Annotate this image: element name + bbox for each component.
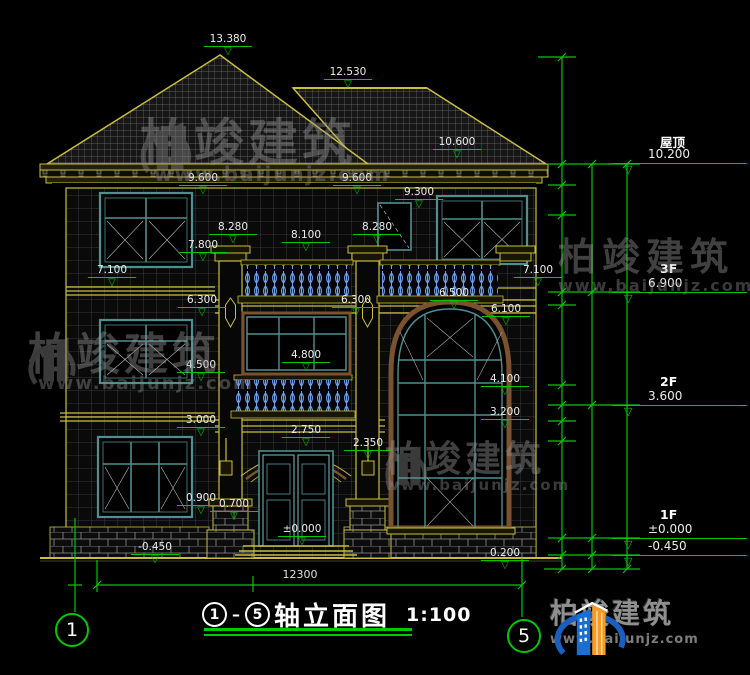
arched-window-right: [387, 302, 515, 534]
eave-band: [40, 164, 548, 188]
axis-bubble-1: 1: [55, 613, 89, 647]
title-separator: –: [232, 605, 240, 624]
floor-elevation: 6.900: [648, 276, 682, 290]
pilaster-capital-right: [496, 246, 535, 261]
roof: [47, 55, 546, 164]
floor-name: 3F: [660, 261, 677, 276]
title-underline: [204, 628, 412, 631]
window-2f-left: [100, 320, 192, 383]
floor-elevation: 3.600: [648, 389, 682, 403]
floor-marker-triangle-icon: [624, 293, 632, 304]
window-2f-center: [243, 313, 350, 374]
floor-elevation: ±0.000: [648, 522, 692, 536]
balustrade-2f: [231, 375, 355, 418]
floor-name: 1F: [660, 507, 677, 522]
floor-marker-triangle-icon: [624, 556, 632, 567]
floor-name: 2F: [660, 374, 677, 389]
window-3f-small: [378, 203, 411, 250]
title-axis-start: 1: [202, 602, 227, 627]
floor-elevation: -0.450: [648, 539, 687, 553]
house-elevation-drawing: [0, 0, 750, 675]
axis-bubble-5: 5: [507, 619, 541, 653]
floor-marker-triangle-icon: [624, 164, 632, 175]
title-scale: 1:100: [406, 604, 471, 626]
company-logo: 柏竣建筑 www.baijunjz.com: [548, 592, 699, 647]
floor-elevation: 10.200: [648, 147, 690, 161]
lamp-right: [362, 461, 374, 475]
cad-elevation-canvas: 13.380 12.530 10.600 9.600 9.600 9.: [0, 0, 750, 675]
window-1f-left: [98, 437, 192, 517]
company-logo-icon: [548, 592, 644, 670]
overall-width-dimension: 12300: [283, 568, 318, 581]
floor-marker-triangle-icon: [624, 406, 632, 417]
lamp-left: [220, 461, 232, 475]
title-underline: [204, 634, 412, 636]
balustrade-3f-left: [238, 260, 356, 303]
title-axis-end: 5: [245, 602, 270, 627]
balustrade-3f-right: [377, 260, 503, 303]
floor-marker-triangle-icon: [624, 539, 632, 550]
window-3f-left: [100, 193, 192, 267]
